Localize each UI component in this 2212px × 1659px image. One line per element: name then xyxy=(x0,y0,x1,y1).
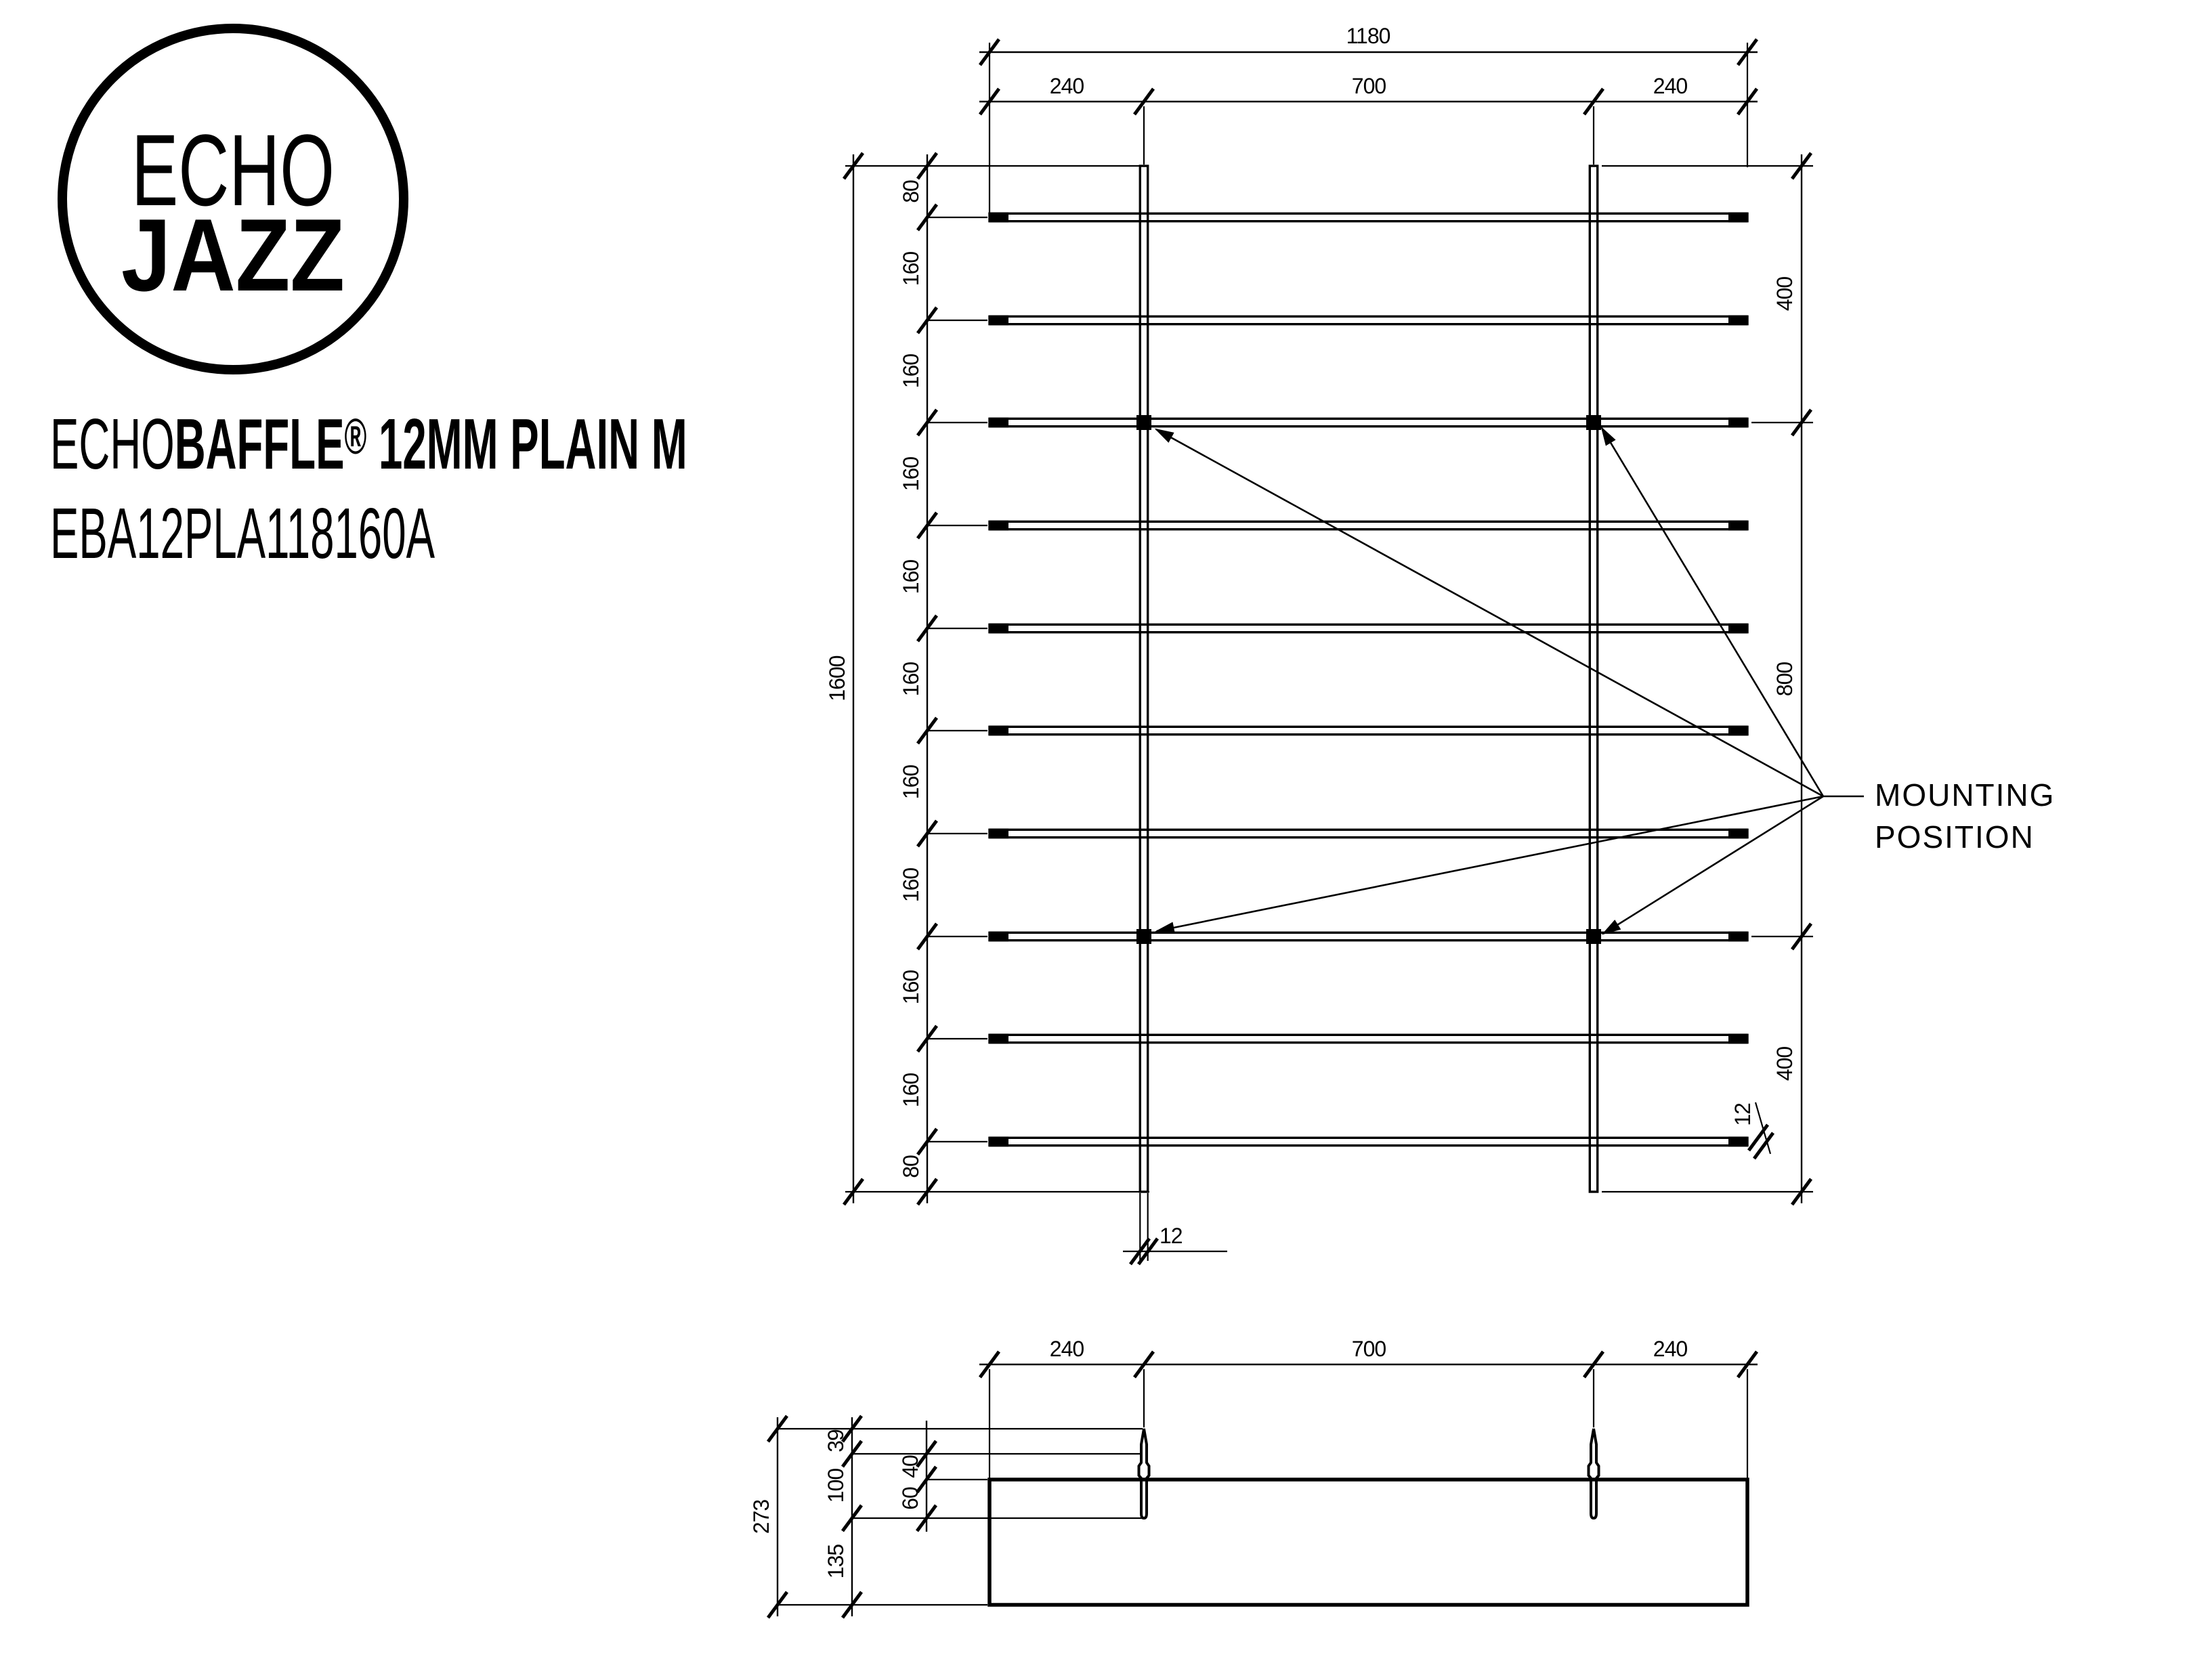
mounting-point xyxy=(1136,929,1151,944)
side-top-dimensions: 240 700 240 xyxy=(979,1337,1758,1478)
suspension-pin xyxy=(1589,1429,1599,1518)
slat xyxy=(990,829,1747,839)
mounting-point xyxy=(1586,415,1601,430)
suspension-pin xyxy=(1139,1429,1149,1518)
front-left-dimensions: 1600 80 160 160 160 160 160 160 160 160 … xyxy=(825,153,1149,1205)
slat xyxy=(990,213,1747,223)
front-right-dimensions: 400 800 400 xyxy=(1602,153,1813,1205)
slat xyxy=(990,1137,1747,1147)
mounting-annotation: MOUNTING POSITION xyxy=(1156,428,2055,934)
dim-height-seg: 160 xyxy=(899,1073,923,1108)
slat xyxy=(990,726,1747,736)
dim-height-seg: 160 xyxy=(899,560,923,595)
dim-width-seg: 240 xyxy=(1050,74,1084,98)
mounting-points xyxy=(1136,415,1601,944)
mounting-position-label-line2: POSITION xyxy=(1875,819,2035,855)
dim-width-total: 1180 xyxy=(1346,24,1390,48)
dim-height-seg: 160 xyxy=(899,662,923,697)
logo-word-jazz: JAZZ xyxy=(121,198,345,313)
side-panel xyxy=(990,1480,1747,1605)
slat xyxy=(990,521,1747,531)
front-view: 1180 240 700 240 xyxy=(825,24,2055,1264)
title-block: ECHOBAFFLE® 12MM PLAIN M EBA12PLA118160A xyxy=(50,404,687,574)
dim-depth-seg: 39 xyxy=(824,1429,848,1452)
dim-height-seg: 160 xyxy=(899,252,923,286)
dim-mount-seg: 400 xyxy=(1772,277,1797,311)
dim-height-total: 1600 xyxy=(825,655,849,701)
product-family: BAFFLE xyxy=(175,404,345,484)
product-series: ECHO xyxy=(50,404,175,484)
rails xyxy=(1140,166,1597,1192)
slats xyxy=(990,213,1747,1147)
dim-depth-seg: 135 xyxy=(824,1545,848,1579)
dim-pin-seg: 60 xyxy=(898,1487,922,1510)
slat xyxy=(990,1034,1747,1044)
rail-right xyxy=(1590,166,1597,1192)
front-top-dimensions: 1180 240 700 240 xyxy=(979,24,1758,213)
side-view: 240 700 240 273 39 100 135 40 xyxy=(749,1337,1758,1618)
dim-mount-seg: 800 xyxy=(1772,662,1797,697)
slat-thickness-callout: 12 xyxy=(1730,1102,1773,1159)
mounting-point xyxy=(1586,929,1601,944)
dim-slat-thickness: 12 xyxy=(1730,1103,1755,1126)
dim-side-seg: 240 xyxy=(1653,1337,1688,1361)
dim-height-seg: 160 xyxy=(899,765,923,800)
dim-height-seg: 160 xyxy=(899,970,923,1005)
brand-logo: ECHO JAZZ xyxy=(62,28,404,370)
rail-left xyxy=(1140,166,1147,1192)
dim-side-seg: 240 xyxy=(1050,1337,1084,1361)
slat xyxy=(990,316,1747,326)
dim-depth-seg: 100 xyxy=(824,1469,848,1503)
mounting-point xyxy=(1136,415,1151,430)
slat xyxy=(990,932,1747,942)
product-code: EBA12PLA118160A xyxy=(50,493,435,574)
technical-drawing-canvas: ECHO JAZZ ECHOBAFFLE® 12MM PLAIN M EBA12… xyxy=(0,0,2212,1659)
dim-rail-thickness: 12 xyxy=(1160,1224,1183,1248)
dim-height-seg: 80 xyxy=(899,180,923,203)
dim-side-seg: 700 xyxy=(1352,1337,1386,1361)
slat xyxy=(990,418,1747,428)
rail-thickness-callout: 12 xyxy=(1123,1193,1227,1264)
dim-width-seg: 240 xyxy=(1653,74,1688,98)
slat xyxy=(990,624,1747,634)
mounting-position-label-line1: MOUNTING xyxy=(1875,777,2055,813)
dim-width-seg: 700 xyxy=(1352,74,1386,98)
dim-mount-seg: 400 xyxy=(1772,1047,1797,1081)
dim-height-seg: 160 xyxy=(899,354,923,389)
product-title: ECHOBAFFLE® 12MM PLAIN M xyxy=(50,404,687,484)
drawing-page: ECHO JAZZ ECHOBAFFLE® 12MM PLAIN M EBA12… xyxy=(0,0,2212,1659)
registered-mark: ® xyxy=(344,408,366,464)
product-variant: 12MM PLAIN M xyxy=(366,404,687,484)
dim-height-seg: 160 xyxy=(899,868,923,903)
dim-height-seg: 80 xyxy=(899,1155,923,1178)
dim-height-seg: 160 xyxy=(899,457,923,492)
side-left-dimensions: 273 39 100 135 40 60 xyxy=(749,1416,936,1618)
dim-depth-total: 273 xyxy=(749,1500,773,1534)
dim-pin-seg: 40 xyxy=(898,1455,922,1478)
